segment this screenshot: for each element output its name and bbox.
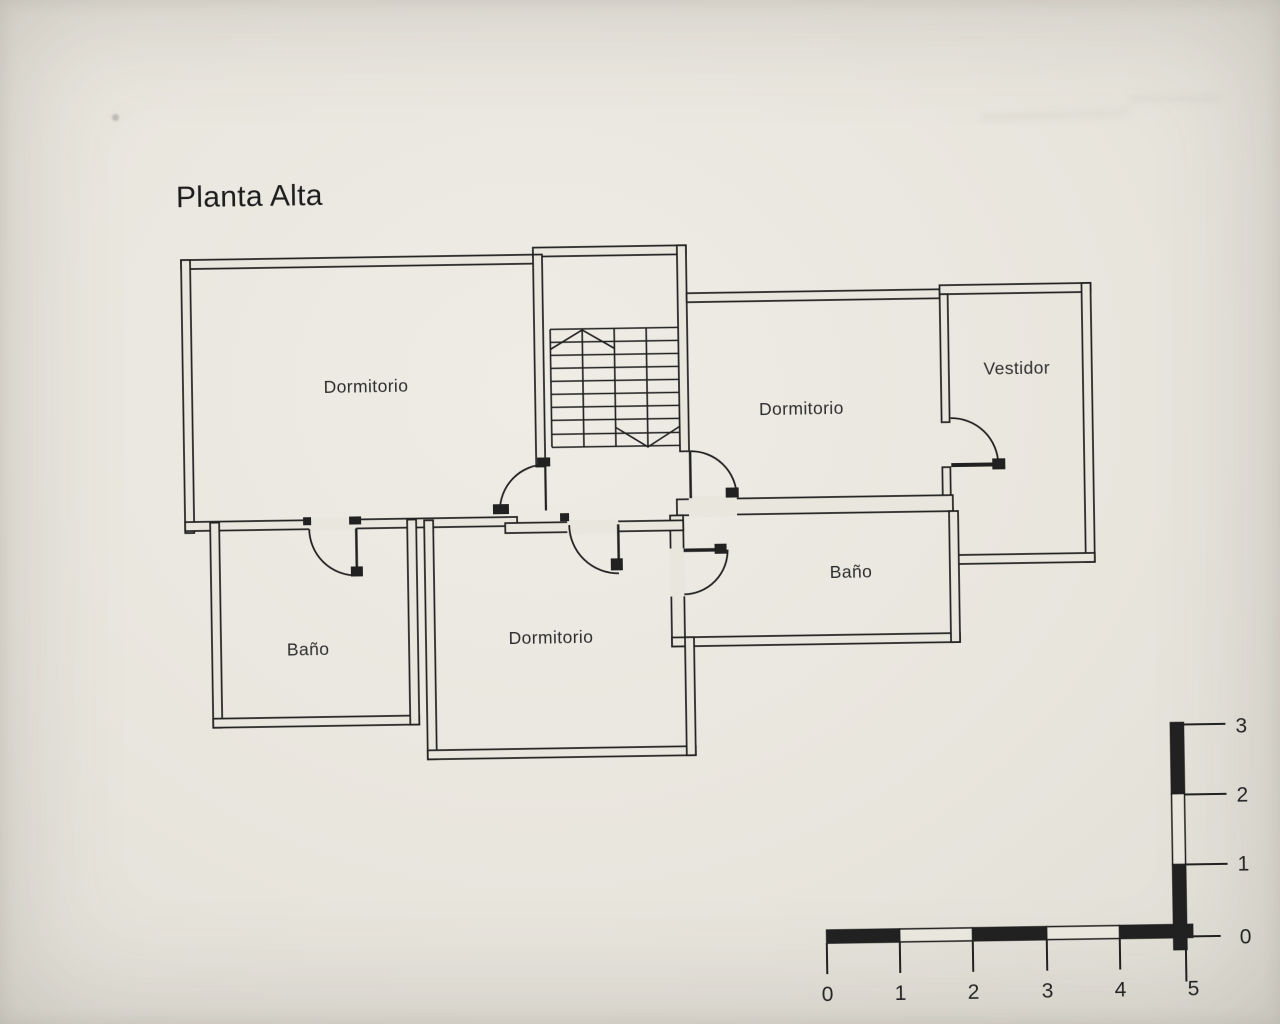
wall-bano2-bottom	[672, 633, 960, 647]
wall-outer-right	[1081, 283, 1094, 562]
scale-bar: 0 1 2 3 4 5 3 2	[817, 714, 1252, 1006]
scale-label-h4: 4	[1115, 978, 1127, 1001]
wall-dorm2-top	[687, 289, 940, 302]
room-label-bano-right: Baño	[830, 561, 873, 582]
scale-segment	[827, 929, 900, 943]
scale-label-h1: 1	[895, 982, 907, 1005]
stair-stringer	[646, 328, 648, 446]
door-arc-bano1	[309, 528, 357, 576]
scale-label-v1: 1	[1237, 852, 1249, 875]
staircase	[550, 327, 680, 448]
scale-segment	[1047, 926, 1120, 940]
scale-label-v0: 0	[1240, 925, 1252, 948]
stair-stringer	[582, 329, 584, 447]
wall-dorm1-left	[181, 260, 194, 533]
door-leaf-dorm1	[545, 464, 546, 510]
scale-label-h5: 5	[1188, 977, 1200, 1000]
stair-stringer	[614, 328, 616, 446]
wall-dorm3-left	[424, 520, 437, 759]
room-label-bano-left: Baño	[287, 639, 330, 660]
door-jamb	[349, 516, 361, 524]
scale-tick	[1185, 794, 1227, 795]
door-arc-vestidor	[951, 417, 999, 465]
room-label-vestidor: Vestidor	[983, 358, 1050, 379]
plan-title: Planta Alta	[176, 179, 323, 214]
door-jamb	[560, 513, 569, 521]
door-jamb	[726, 487, 739, 497]
floor-plan: Dormitorio Dormitorio Vestidor Baño Baño…	[0, 0, 1280, 1034]
door-jamb	[611, 558, 623, 570]
scale-segment	[1171, 793, 1185, 864]
scale-segment	[900, 928, 973, 942]
door-jamb	[537, 457, 550, 466]
door-arc-bano2	[684, 550, 729, 595]
wall-dorm3-bottom	[428, 746, 696, 759]
door-opening-dorm3	[567, 519, 618, 534]
wall-bano1-bottom	[213, 715, 419, 727]
door-leaf-vestidor	[951, 464, 998, 465]
door-jamb	[715, 544, 727, 554]
door-opening-bano2	[670, 548, 686, 596]
door-leaf-dorm2	[690, 451, 691, 498]
wall-vestidor-top	[939, 283, 1090, 294]
door-jamb	[992, 458, 1005, 469]
scale-label-v3: 3	[1235, 714, 1247, 737]
door-openings	[309, 495, 739, 602]
scale-label-v2: 2	[1236, 783, 1248, 806]
door-jamb	[351, 566, 363, 576]
scale-tick	[1183, 724, 1225, 725]
wall-vestidor-left-upper	[940, 294, 950, 422]
scale-tick	[1186, 864, 1228, 865]
scale-label-h2: 2	[968, 981, 980, 1004]
wall-stairs-right	[677, 245, 689, 451]
wall-bano1-left	[210, 523, 222, 728]
room-label-dormitorio-top-right: Dormitorio	[759, 398, 844, 419]
plan-sheet: Dormitorio Dormitorio Vestidor Baño Baño…	[0, 0, 1280, 1034]
scale-bar-vertical: 3 2 1 0	[1170, 714, 1251, 949]
room-label-dormitorio-bottom: Dormitorio	[508, 627, 593, 648]
walls	[181, 239, 1098, 763]
wall-vestidor-bottom	[951, 553, 1095, 564]
door-leaf-bano1	[356, 528, 357, 572]
scale-segment	[1170, 722, 1184, 793]
scale-bar-horizontal: 0 1 2 3 4 5	[821, 924, 1200, 1006]
scale-label-h3: 3	[1042, 980, 1054, 1003]
stair-stringer	[550, 329, 552, 447]
door-jamb	[493, 504, 509, 514]
wall-dorm1-top	[181, 255, 541, 270]
wall-bano1-right	[407, 520, 419, 725]
wall-dorm3-right-lower	[685, 637, 696, 755]
scale-segment	[973, 927, 1047, 941]
photo-background: Dormitorio Dormitorio Vestidor Baño Baño…	[0, 0, 1280, 1024]
scale-segment	[1173, 864, 1187, 949]
wall-bano2-right	[949, 511, 960, 642]
door-jamb	[303, 517, 311, 525]
door-opening-dorm2	[689, 495, 737, 517]
wall-stairs-top	[533, 245, 686, 256]
wall-stairs-left	[533, 255, 545, 467]
room-label-dormitorio-top-left: Dormitorio	[323, 376, 408, 397]
scale-label-h0: 0	[822, 983, 834, 1006]
